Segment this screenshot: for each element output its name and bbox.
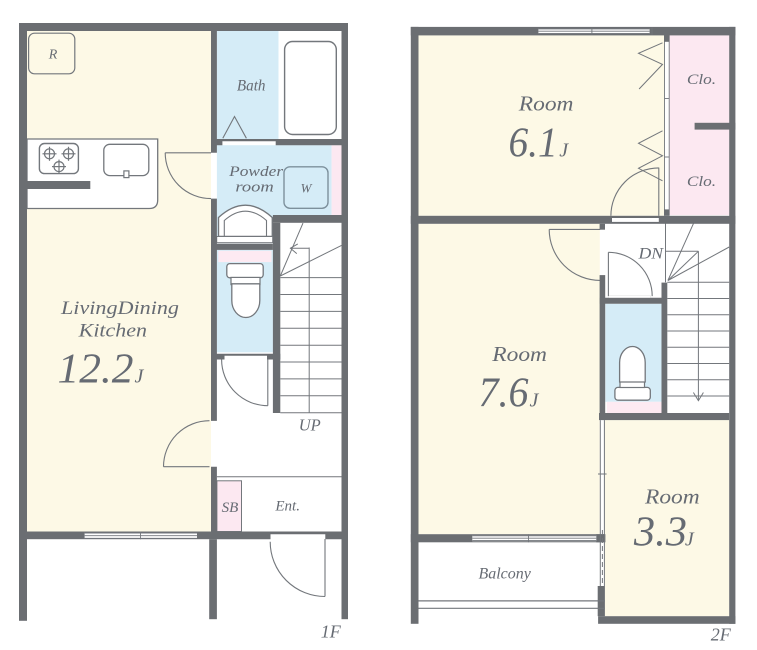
svg-text:1F: 1F [321,622,342,642]
svg-text:LivingDining: LivingDining [60,299,179,319]
svg-text:SB: SB [222,500,239,516]
svg-text:3.3: 3.3 [633,509,687,555]
svg-text:Room: Room [644,485,700,508]
svg-text:2F: 2F [711,625,732,645]
svg-text:J: J [559,140,569,162]
svg-text:Room: Room [491,343,547,366]
svg-text:W: W [301,181,313,196]
svg-text:Bath: Bath [237,78,266,95]
svg-text:J: J [685,528,695,550]
svg-text:J: J [135,366,145,388]
svg-text:Ent.: Ent. [274,499,300,515]
svg-text:Kitchen: Kitchen [78,321,147,341]
svg-text:12.2: 12.2 [58,347,134,393]
svg-text:Clo.: Clo. [687,72,716,88]
svg-text:Clo.: Clo. [687,174,716,190]
svg-text:room: room [235,180,273,196]
svg-text:Powder: Powder [228,164,284,180]
svg-text:7.6: 7.6 [479,370,529,416]
svg-text:UP: UP [299,416,321,435]
svg-text:6.1: 6.1 [509,121,558,167]
svg-text:Room: Room [518,92,574,115]
svg-text:R: R [48,48,58,63]
svg-text:DN: DN [637,246,664,263]
svg-text:Balcony: Balcony [479,566,531,583]
svg-text:J: J [530,389,540,411]
